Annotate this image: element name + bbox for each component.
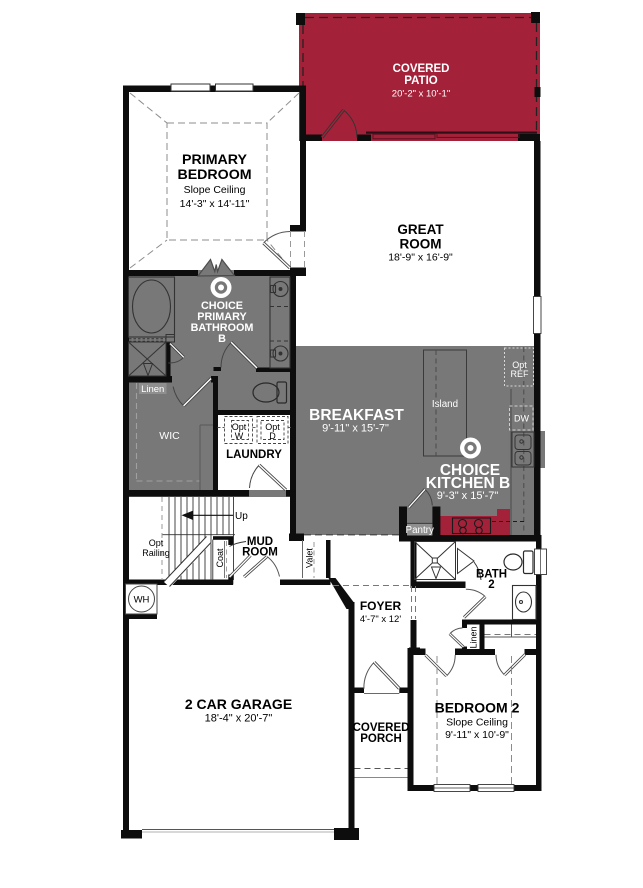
svg-text:2 CAR GARAGE: 2 CAR GARAGE (185, 696, 292, 712)
svg-text:ROOM: ROOM (400, 237, 442, 252)
svg-text:COVERED: COVERED (393, 63, 450, 75)
svg-text:Slope Ceiling: Slope Ceiling (446, 717, 508, 729)
svg-text:Opt: Opt (149, 538, 164, 548)
svg-text:W: W (235, 431, 244, 441)
svg-text:Island: Island (432, 399, 458, 410)
svg-text:Slope Ceiling: Slope Ceiling (184, 184, 246, 196)
svg-text:GREAT: GREAT (397, 222, 444, 237)
svg-text:PORCH: PORCH (360, 733, 402, 745)
svg-text:BEDROOM 2: BEDROOM 2 (435, 700, 520, 716)
svg-text:D: D (269, 431, 276, 441)
svg-text:PATIO: PATIO (404, 75, 437, 87)
svg-text:9'-11" x 10'-9": 9'-11" x 10'-9" (445, 729, 509, 741)
svg-text:Up: Up (235, 511, 248, 522)
svg-text:WIC: WIC (159, 430, 180, 442)
svg-text:Valet: Valet (305, 548, 315, 568)
svg-text:FOYER: FOYER (360, 599, 402, 613)
svg-text:9'-3" x 15'-7": 9'-3" x 15'-7" (437, 490, 499, 502)
svg-text:Coat: Coat (215, 548, 225, 568)
svg-text:2: 2 (488, 579, 494, 591)
svg-text:Pantry: Pantry (406, 525, 434, 536)
svg-text:14'-3" x 14'-11": 14'-3" x 14'-11" (180, 198, 250, 210)
svg-text:WH: WH (134, 595, 150, 606)
svg-text:PRIMARY: PRIMARY (182, 152, 247, 168)
svg-text:BREAKFAST: BREAKFAST (309, 407, 404, 424)
svg-text:20'-2" x 10'-1": 20'-2" x 10'-1" (392, 89, 450, 100)
svg-text:18'-4" x 20'-7": 18'-4" x 20'-7" (205, 713, 273, 725)
svg-text:LAUNDRY: LAUNDRY (226, 449, 282, 461)
svg-text:Railing: Railing (142, 548, 170, 558)
svg-text:DW: DW (514, 414, 529, 424)
svg-text:B: B (218, 333, 226, 345)
svg-text:Linen: Linen (469, 626, 479, 648)
svg-text:18'-9" x 16'-9": 18'-9" x 16'-9" (388, 252, 453, 264)
svg-text:9'-11" x 15'-7": 9'-11" x 15'-7" (322, 423, 389, 435)
svg-text:BEDROOM: BEDROOM (177, 167, 251, 183)
svg-text:Linen: Linen (141, 384, 164, 395)
svg-text:4'-7" x 12': 4'-7" x 12' (360, 614, 402, 625)
svg-text:REF: REF (511, 369, 530, 379)
